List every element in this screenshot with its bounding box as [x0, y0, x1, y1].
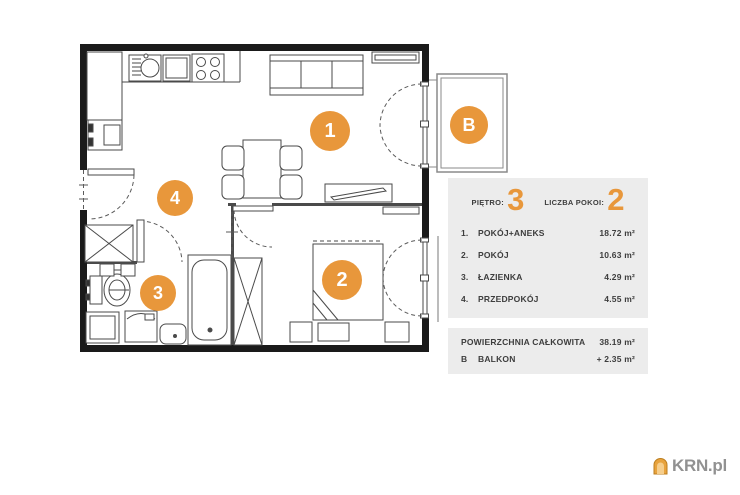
balcony-value: + 2.35 m² [597, 354, 635, 364]
room-row: 4. PRZEDPOKÓJ 4.55 m² [461, 294, 635, 304]
floorplan-page: 1 2 3 4 B PIĘTRO: 3 LICZBA POKOI: 2 1. P… [0, 0, 740, 495]
shelf [383, 207, 419, 214]
info-panel: PIĘTRO: 3 LICZBA POKOI: 2 1. POKÓJ+ANEKS… [448, 178, 648, 374]
bathroom-door [137, 220, 144, 262]
room-marker-2: 2 [322, 260, 362, 300]
total-area-row: POWIERZCHNIA CAŁKOWITA 38.19 m² [461, 337, 635, 347]
balcony-marker: B [450, 106, 488, 144]
room-name: ŁAZIENKA [478, 272, 604, 282]
dishwasher [163, 55, 190, 81]
bathroom-sink [160, 324, 186, 344]
room-marker-label: 1 [324, 121, 335, 141]
kitchen-area [87, 51, 240, 150]
bedroom-wardrobe [234, 258, 262, 345]
bedroom-door [233, 206, 273, 211]
krn-logo[interactable]: KRN.pl [651, 456, 727, 476]
room-name: POKÓJ [478, 250, 599, 260]
room-marker-label: 3 [153, 284, 163, 302]
room-row: 1. POKÓJ+ANEKS 18.72 m² [461, 228, 635, 238]
tv-cabinet [325, 184, 392, 202]
vanity-cabinet [86, 312, 119, 343]
bedroom-area [234, 241, 409, 345]
panel-header: PIĘTRO: 3 LICZBA POKOI: 2 [448, 178, 648, 214]
room-index: 3. [461, 272, 478, 282]
bench [318, 323, 349, 341]
total-area-label: POWIERZCHNIA CAŁKOWITA [461, 337, 599, 347]
kitchen-cabinet [87, 52, 122, 120]
dining-table [222, 140, 302, 199]
room-area: 18.72 m² [599, 228, 635, 238]
room-area: 4.29 m² [604, 272, 635, 282]
entrance-door [88, 169, 134, 175]
room-marker-1: 1 [310, 111, 350, 151]
rooms-count-stat: LICZBA POKOI: 2 [544, 186, 624, 214]
kitchen-sink [129, 54, 161, 81]
bathtub [188, 255, 231, 345]
room-marker-label: B [463, 116, 476, 134]
washing-machine [125, 311, 157, 342]
krn-house-icon [651, 456, 670, 476]
total-area-value: 38.19 m² [599, 337, 635, 347]
hall-wardrobe [85, 225, 133, 262]
sofa [270, 55, 363, 95]
balcony-label: BALKON [478, 354, 597, 364]
krn-logo-text: KRN.pl [672, 456, 727, 476]
toilet [86, 274, 130, 306]
floor-value: 3 [507, 186, 524, 214]
room-row: 2. POKÓJ 10.63 m² [461, 250, 635, 260]
room-marker-3: 3 [140, 275, 176, 311]
balcony-row: B BALKON + 2.35 m² [461, 354, 635, 364]
room-index: 2. [461, 250, 478, 260]
room-area: 4.55 m² [604, 294, 635, 304]
nightstand [385, 322, 409, 342]
room-name: PRZEDPOKÓJ [478, 294, 604, 304]
room-row: 3. ŁAZIENKA 4.29 m² [461, 272, 635, 282]
rooms-panel: PIĘTRO: 3 LICZBA POKOI: 2 1. POKÓJ+ANEKS… [448, 178, 648, 318]
hallway-area [85, 225, 133, 262]
rooms-count-value: 2 [607, 186, 624, 214]
stove [192, 54, 224, 82]
room-area: 10.63 m² [599, 250, 635, 260]
room-index: 1. [461, 228, 478, 238]
room-marker-label: 2 [336, 270, 347, 290]
totals-panel: POWIERZCHNIA CAŁKOWITA 38.19 m² B BALKON… [448, 328, 648, 374]
rooms-count-label: LICZBA POKOI: [544, 198, 604, 207]
room-marker-4: 4 [157, 180, 193, 216]
wall-shelf [372, 52, 419, 63]
floor-label: PIĘTRO: [472, 198, 505, 207]
balcony-index: B [461, 354, 478, 364]
room-list: 1. POKÓJ+ANEKS 18.72 m² 2. POKÓJ 10.63 m… [448, 228, 648, 304]
room-index: 4. [461, 294, 478, 304]
nightstand [290, 322, 312, 342]
room-marker-label: 4 [170, 189, 180, 207]
floor-stat: PIĘTRO: 3 [472, 186, 525, 214]
room-name: POKÓJ+ANEKS [478, 228, 599, 238]
